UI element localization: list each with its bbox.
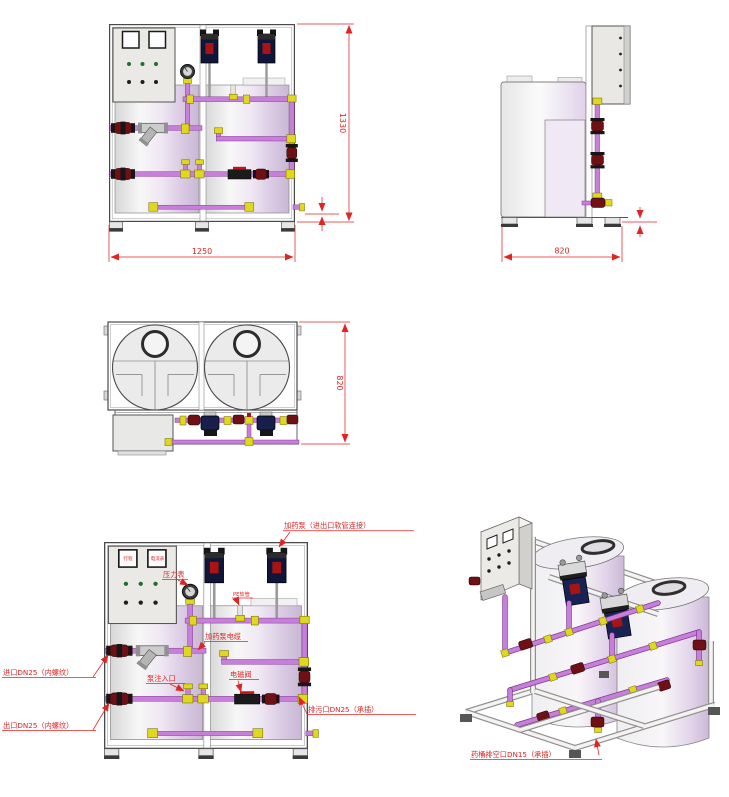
machine-front-drawing — [109, 25, 305, 232]
control-box-top — [113, 415, 173, 451]
dim-text-height: 1330 — [338, 113, 347, 133]
label-text: 电磁阀 — [230, 670, 252, 679]
pump-top — [201, 412, 219, 436]
label-text: 泵注入口 — [147, 674, 176, 683]
label-drain-port: 排污口DN25（承插） — [299, 697, 416, 715]
frame-post — [586, 26, 592, 218]
side-view: 820 — [478, 12, 729, 264]
label-text: 出口DN25（内螺纹） — [3, 721, 73, 730]
label-text: 压力表 — [163, 570, 185, 579]
label-text: 排污口DN25（承插） — [308, 705, 378, 714]
dim-text-depth-top: 820 — [335, 375, 344, 390]
machine-front-drawing — [104, 543, 318, 759]
label-text: 进口DN25（内螺纹） — [3, 668, 73, 677]
dim-height: 1330 — [297, 24, 354, 222]
dim-text-depth: 820 — [554, 247, 569, 256]
dim-depth: 820 — [502, 226, 622, 262]
side-tank — [501, 76, 586, 217]
annotated-front-view: 加药泵（进出口软管连接） 压力表 PE软管 加药泵电缆 泵注入口 电磁阀 — [0, 505, 436, 797]
pump-top — [257, 412, 275, 436]
dim-depth-top: 820 — [299, 322, 350, 444]
label-text: PE软管 — [233, 590, 250, 598]
top-view: 820 — [88, 313, 368, 485]
top-piping — [165, 412, 299, 446]
small-dim-marker — [305, 197, 339, 231]
tank-top-circle — [113, 325, 198, 410]
iso-control-cabinet — [481, 517, 532, 600]
panel-label-left: 行程 — [123, 555, 133, 562]
isometric-view: 药桶排空口DN15（承插） — [453, 493, 729, 797]
control-cabinet-side — [592, 26, 630, 104]
label-outlet-port: 出口DN25（内螺纹） — [2, 703, 109, 731]
label-text: 加药泵（进出口软管连接） — [284, 521, 370, 530]
tank-lid-opening — [235, 332, 260, 357]
front-view: 1330 1250 — [100, 10, 362, 268]
panel-label-right: 电流表 — [151, 555, 165, 562]
dim-text-width: 1250 — [192, 247, 212, 256]
label-text: 加药泵电缆 — [205, 632, 241, 641]
tank-top-circle — [205, 325, 290, 410]
tank-lid-opening — [143, 332, 168, 357]
small-dim-marker — [622, 207, 657, 237]
iso-valve — [469, 577, 480, 585]
label-tank-empty-port: 药桶排空口DN15（承插） — [470, 739, 602, 760]
drawing-canvas: 1330 1250 — [0, 0, 729, 797]
label-text: 药桶排空口DN15（承插） — [471, 750, 556, 759]
side-feet — [501, 218, 628, 228]
label-inlet-port: 进口DN25（内螺纹） — [2, 655, 108, 678]
